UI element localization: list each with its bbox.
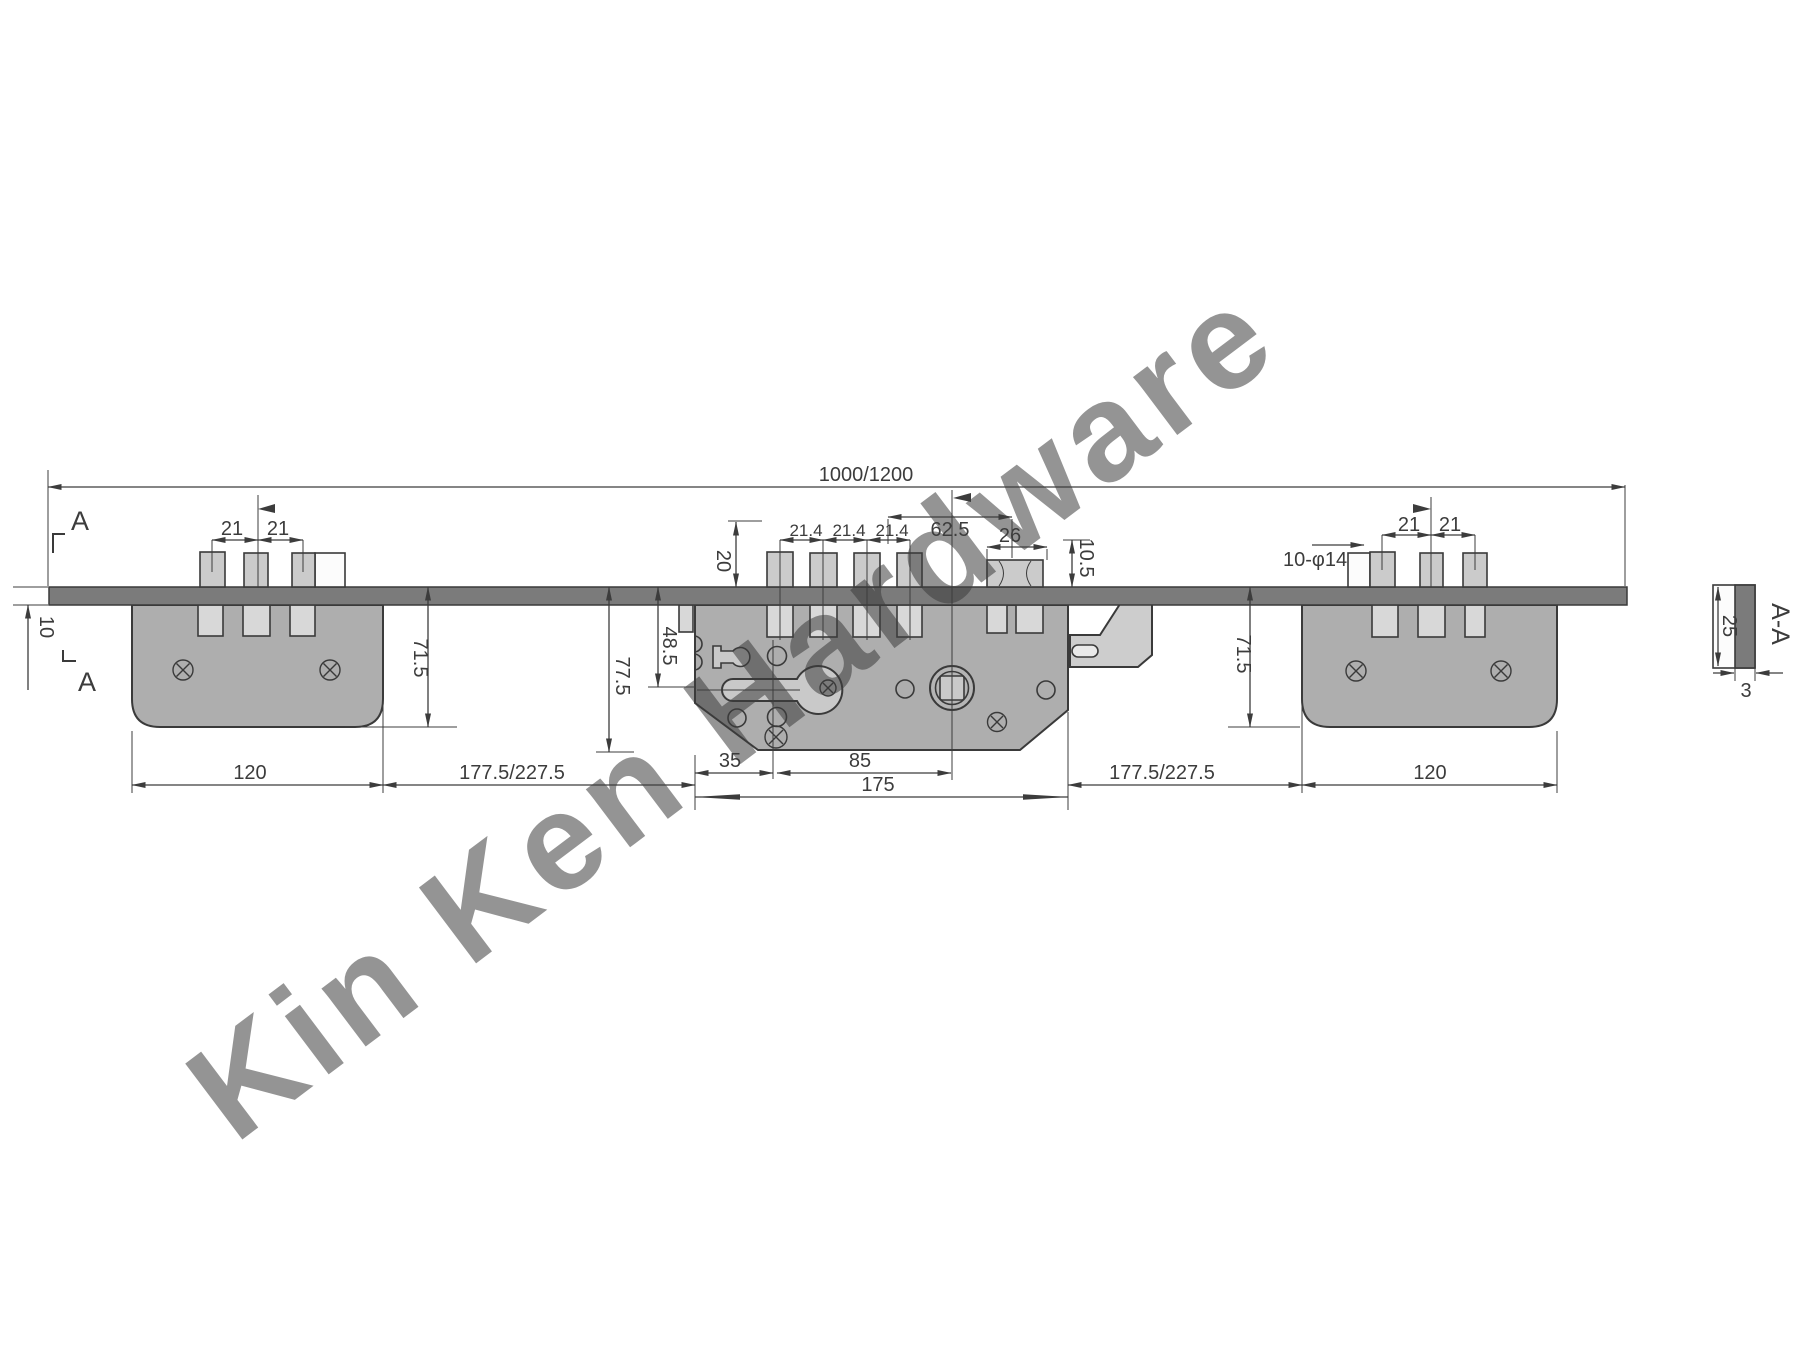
lock-technical-drawing: 25 3 A-A 1000/1200 A A 10 21 21	[0, 0, 1800, 1350]
svg-text:120: 120	[233, 762, 266, 784]
svg-text:21.4: 21.4	[789, 521, 822, 540]
svg-text:71.5: 71.5	[1232, 635, 1254, 674]
svg-text:21: 21	[1398, 514, 1420, 536]
left-case-bolts	[198, 605, 315, 636]
section-thickness-label: 3	[1740, 680, 1751, 702]
dim-right-width: 120	[1302, 731, 1557, 793]
right-case-bolts	[1372, 605, 1485, 637]
drawing-canvas: 25 3 A-A 1000/1200 A A 10 21 21	[0, 0, 1800, 1350]
svg-text:20: 20	[712, 550, 734, 572]
svg-text:1000/1200: 1000/1200	[819, 464, 914, 486]
cut-label-top: A	[71, 506, 89, 536]
svg-text:85: 85	[849, 750, 871, 772]
cut-label-bottom: A	[78, 667, 96, 697]
svg-text:21: 21	[221, 518, 243, 540]
svg-text:71.5: 71.5	[409, 639, 431, 678]
left-bolts	[200, 552, 345, 587]
section-height-label: 25	[1718, 615, 1740, 637]
svg-text:10: 10	[35, 616, 57, 638]
svg-text:10-φ14: 10-φ14	[1283, 549, 1347, 571]
svg-text:21: 21	[1439, 514, 1461, 536]
svg-text:177.5/227.5: 177.5/227.5	[1109, 762, 1215, 784]
svg-text:175: 175	[861, 774, 894, 796]
latch-hook	[1070, 604, 1152, 667]
section-view: 25 3 A-A	[1713, 585, 1794, 702]
svg-text:77.5: 77.5	[611, 657, 633, 696]
svg-text:21: 21	[267, 518, 289, 540]
right-bolts	[1348, 552, 1487, 587]
dim-bolt-throw: 20	[712, 521, 762, 587]
dim-right-height: 71.5	[1228, 587, 1300, 727]
svg-text:120: 120	[1413, 762, 1446, 784]
section-label: A-A	[1766, 603, 1794, 645]
